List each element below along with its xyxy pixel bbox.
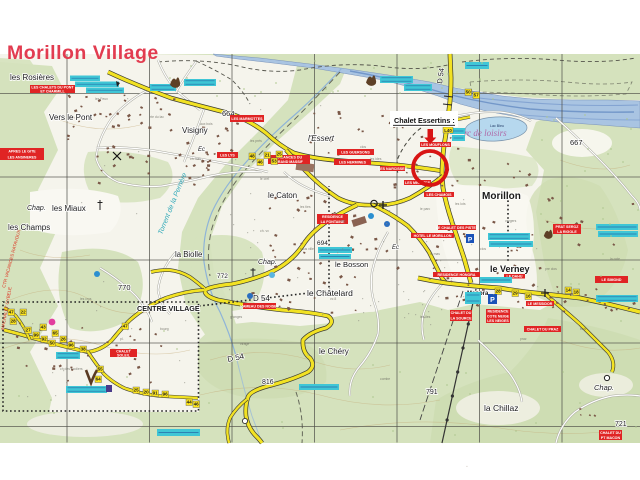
svg-text:53: 53: [272, 159, 278, 164]
svg-text:46: 46: [258, 160, 264, 165]
svg-text:le Chéry: le Chéry: [319, 347, 349, 356]
svg-text:64: 64: [96, 377, 102, 382]
svg-text:P: P: [490, 297, 495, 304]
svg-text:le Bosson: le Bosson: [335, 260, 368, 269]
svg-text:HAMEAU DES NOISET: HAMEAU DES NOISET: [240, 304, 279, 308]
svg-text:clos: clos: [480, 247, 486, 251]
svg-text:vergers: vergers: [505, 219, 517, 223]
svg-text:57: 57: [474, 93, 480, 98]
svg-text:LES HERMINES: LES HERMINES: [339, 160, 367, 164]
svg-text:43: 43: [41, 325, 47, 330]
svg-text:LES LYS: LES LYS: [220, 153, 235, 157]
svg-text:clos: clos: [360, 145, 366, 149]
svg-text:92: 92: [42, 337, 48, 342]
svg-text:Visigny: Visigny: [182, 126, 208, 135]
svg-text:47: 47: [9, 310, 15, 315]
svg-text:47: 47: [123, 324, 129, 329]
svg-text:les Miaux: les Miaux: [52, 204, 86, 213]
svg-text:Chap.: Chap.: [594, 383, 614, 392]
svg-text:50: 50: [50, 341, 56, 346]
svg-text:sous ville: sous ville: [300, 247, 314, 251]
svg-text:imp.: imp.: [340, 219, 346, 223]
svg-text:le cret: le cret: [260, 177, 269, 181]
svg-text:LE MESSIDOR: LE MESSIDOR: [528, 302, 553, 306]
svg-text:les ties: les ties: [300, 205, 311, 209]
svg-text:P: P: [468, 237, 473, 244]
svg-text:la Biolle: la Biolle: [175, 250, 202, 259]
svg-text:le Verney: le Verney: [490, 264, 530, 274]
svg-text:la Chillaz: la Chillaz: [484, 403, 519, 413]
svg-text:LES CHAMOIS: LES CHAMOIS: [427, 193, 453, 197]
svg-text:96: 96: [69, 343, 75, 348]
svg-text:COTE NEIGE: COTE NEIGE: [487, 314, 510, 318]
svg-text:96: 96: [163, 392, 169, 397]
svg-text:les Rosières: les Rosières: [10, 73, 54, 82]
svg-text:CHALET DU PRAZ: CHALET DU PRAZ: [527, 327, 559, 331]
svg-text:667: 667: [570, 138, 583, 147]
svg-text:38: 38: [81, 347, 87, 352]
svg-text:les lots: les lots: [455, 202, 466, 206]
svg-text:granges: granges: [230, 315, 243, 319]
svg-text:14: 14: [566, 288, 572, 293]
svg-text:28: 28: [11, 319, 17, 324]
svg-text:CHALET DU: CHALET DU: [600, 431, 621, 435]
svg-text:les prés: les prés: [250, 139, 262, 143]
svg-text:26: 26: [61, 337, 67, 342]
svg-text:APRES LE GITE: APRES LE GITE: [8, 149, 36, 153]
svg-text:LA RIGOLE: LA RIGOLE: [557, 230, 577, 234]
svg-text:PT MACON: PT MACON: [601, 436, 621, 440]
svg-text:RESIDENCE: RESIDENCE: [488, 310, 510, 314]
svg-text:rte du lac: rte du lac: [150, 115, 164, 119]
svg-text:Ec: Ec: [198, 147, 205, 153]
svg-text:694: 694: [317, 240, 328, 247]
svg-text:D 54: D 54: [253, 294, 270, 303]
svg-text:Morillon Village: Morillon Village: [7, 42, 159, 64]
svg-text:25: 25: [134, 388, 140, 393]
svg-text:les Feux: les Feux: [95, 97, 108, 101]
svg-text:LES ANSINERES: LES ANSINERES: [8, 155, 37, 159]
svg-text:bois: bois: [580, 327, 587, 331]
svg-text:LE CHALET DES PISTES: LE CHALET DES PISTES: [436, 226, 479, 230]
svg-text:le mas: le mas: [430, 252, 440, 256]
svg-text:LES MARMOTTES: LES MARMOTTES: [231, 117, 263, 121]
svg-text:Vers le Pont: Vers le Pont: [49, 113, 93, 122]
svg-text:Ec: Ec: [392, 245, 399, 251]
svg-text:les iles: les iles: [420, 315, 431, 319]
svg-text:21: 21: [265, 153, 271, 158]
svg-text:HOTEL LE MORILLON: HOTEL LE MORILLON: [414, 234, 452, 238]
svg-text:praz: praz: [520, 337, 527, 341]
svg-text:44: 44: [187, 400, 193, 405]
svg-text:le Caton: le Caton: [268, 191, 297, 200]
svg-text:les ides: les ides: [370, 157, 382, 161]
svg-text:ch. bas: ch. bas: [190, 157, 201, 161]
svg-text:LE SIMOND: LE SIMOND: [602, 278, 622, 282]
svg-text:ch des ecoliers: ch des ecoliers: [60, 367, 83, 371]
svg-text:65: 65: [53, 331, 59, 336]
svg-text:ch. vx: ch. vx: [260, 229, 269, 233]
svg-text:27: 27: [26, 328, 32, 333]
svg-text:772: 772: [217, 273, 228, 280]
svg-text:LES NEIGES: LES NEIGES: [487, 319, 509, 323]
svg-text:RESIDENCE HONORA: RESIDENCE HONORA: [438, 273, 476, 277]
svg-text:pre clos: pre clos: [545, 267, 557, 271]
svg-text:721: 721: [615, 421, 627, 428]
svg-text:LES MOUFLONS: LES MOUFLONS: [421, 143, 450, 147]
svg-text:20: 20: [144, 390, 150, 395]
svg-text:25: 25: [277, 152, 283, 157]
svg-text:GRAND MASSIF: GRAND MASSIF: [275, 160, 304, 164]
svg-text:rc de loisirs: rc de loisirs: [464, 128, 507, 138]
svg-text:vc 8: vc 8: [330, 297, 336, 301]
svg-text:99: 99: [34, 333, 40, 338]
svg-text:Chap.: Chap.: [27, 205, 46, 212]
svg-text:22: 22: [21, 310, 27, 315]
svg-text:Chalet Essertins :: Chalet Essertins :: [394, 116, 455, 125]
svg-text:29: 29: [513, 291, 519, 296]
svg-text:LES NARCISSES: LES NARCISSES: [378, 167, 408, 171]
svg-text:bourg: bourg: [160, 327, 169, 331]
svg-text:50: 50: [466, 90, 472, 95]
svg-text:le parc: le parc: [420, 207, 430, 211]
svg-text:LES GUERSONS: LES GUERSONS: [341, 150, 370, 154]
svg-text:virage: virage: [240, 342, 249, 346]
svg-text:SOLEIL: SOLEIL: [117, 353, 131, 357]
svg-text:les crys: les crys: [80, 297, 92, 301]
svg-text:combe: combe: [380, 377, 390, 381]
svg-text:LA SOURCE: LA SOURCE: [450, 317, 472, 321]
svg-text:46: 46: [194, 402, 200, 407]
svg-text:ET CHARMILL: ET CHARMILL: [40, 89, 65, 93]
svg-text:l'Essert: l'Essert: [308, 134, 335, 143]
svg-text:Morillon: Morillon: [482, 191, 521, 202]
svg-text:L40: L40: [444, 128, 452, 133]
svg-text:aux bois: aux bois: [200, 122, 213, 126]
svg-text:18: 18: [574, 290, 580, 295]
svg-text:770: 770: [118, 283, 131, 292]
svg-text:pl.: pl.: [120, 337, 124, 341]
svg-text:les Champs: les Champs: [8, 223, 50, 232]
svg-text:CHALET DU: CHALET DU: [451, 311, 472, 315]
svg-text:28: 28: [496, 289, 502, 294]
svg-text:816: 816: [262, 379, 274, 386]
svg-text:16: 16: [526, 294, 532, 299]
svg-text:791: 791: [426, 389, 438, 396]
svg-text:Lac Bleu: Lac Bleu: [490, 124, 504, 128]
svg-text:la cote: la cote: [610, 257, 620, 261]
svg-text:PRAT SEROZ: PRAT SEROZ: [556, 225, 580, 229]
svg-text:48: 48: [250, 154, 256, 159]
svg-text:CENTRE VILLAGE: CENTRE VILLAGE: [137, 304, 200, 313]
svg-text:Chap.: Chap.: [258, 259, 277, 266]
svg-text:55: 55: [98, 367, 104, 372]
